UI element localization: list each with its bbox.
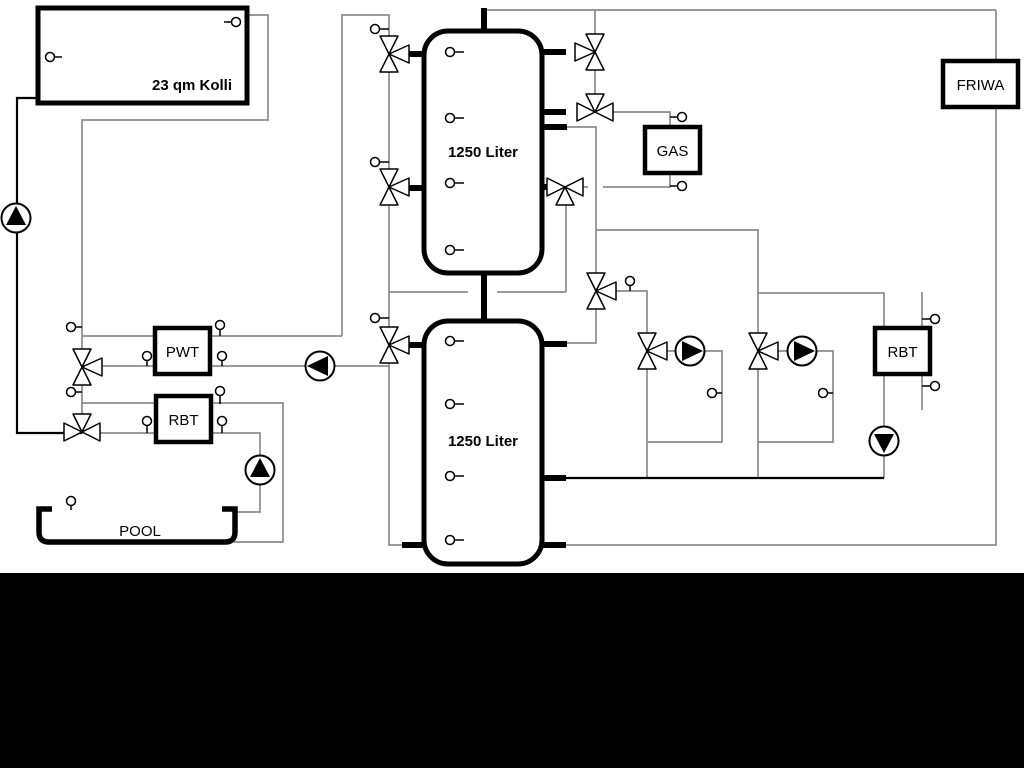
sensor-bulb xyxy=(678,113,687,122)
sensor-bulb xyxy=(819,389,828,398)
pipe xyxy=(342,15,402,545)
temperature-sensor-icon xyxy=(922,382,940,391)
pool-label: POOL xyxy=(119,523,161,540)
temperature-sensor-icon xyxy=(67,497,76,511)
sensor-bulb xyxy=(218,417,227,426)
sensor-bulb xyxy=(67,497,76,506)
buffer-tank-2-label: 1250 Liter xyxy=(448,433,518,450)
temperature-sensor-icon xyxy=(371,314,390,323)
sensor-bulb xyxy=(371,25,380,34)
buffer-tank-1-label: 1250 Liter xyxy=(448,144,518,161)
sensor-bulb xyxy=(678,182,687,191)
sensor-bulb xyxy=(446,337,455,346)
temperature-sensor-icon xyxy=(67,323,83,332)
three-way-valve-distribution-valve xyxy=(587,273,616,309)
sensor-bulb xyxy=(446,536,455,545)
sensor-bulb xyxy=(218,352,227,361)
sensor-bulb xyxy=(216,321,225,330)
temperature-sensor-icon xyxy=(670,113,687,122)
gas-boiler-label: GAS xyxy=(657,143,689,160)
three-way-valve-pool-mixing-valve xyxy=(64,414,100,441)
temperature-sensor-icon xyxy=(670,182,687,191)
three-way-valve-tank1-left-top-valve xyxy=(380,36,409,72)
sensor-bulb xyxy=(67,388,76,397)
solar-collector-label: 23 qm Kolli xyxy=(152,77,232,94)
sensor-bulb xyxy=(626,277,635,286)
sensor-bulb xyxy=(216,387,225,396)
temperature-sensor-icon xyxy=(143,352,152,367)
temperature-sensor-icon xyxy=(371,25,390,34)
pipe xyxy=(758,293,884,478)
sensor-bulb xyxy=(446,472,455,481)
sensor-bulb xyxy=(371,314,380,323)
sensor-bulb xyxy=(143,417,152,426)
three-way-valve-circuit2-mixing-valve xyxy=(749,333,778,369)
pump-icon-rbt-right-pump xyxy=(870,427,899,456)
sensor-bulb xyxy=(446,48,455,57)
three-way-valve-gas-return-valve xyxy=(547,178,583,205)
sensor-bulb xyxy=(446,179,455,188)
temperature-sensor-icon xyxy=(819,389,834,398)
three-way-valve-tank1-left-bottom-valve xyxy=(380,169,409,205)
three-way-valve-tank1-charge-valve xyxy=(575,34,604,70)
footer-black-bar xyxy=(0,573,1024,768)
sensor-bulb xyxy=(46,53,55,62)
three-way-valve-circuit1-mixing-valve xyxy=(638,333,667,369)
three-way-valve-tank2-left-valve xyxy=(380,327,409,363)
temperature-sensor-icon xyxy=(626,277,635,292)
temperature-sensor-icon xyxy=(371,158,390,167)
pipe xyxy=(17,98,82,433)
temperature-sensor-icon xyxy=(216,387,225,405)
temperature-sensor-icon xyxy=(216,321,225,337)
pipe xyxy=(567,127,596,291)
rbt-left-label: RBT xyxy=(169,412,199,429)
friwa-label: FRIWA xyxy=(957,77,1005,94)
sensor-bulb xyxy=(446,246,455,255)
sensor-bulb xyxy=(446,400,455,409)
hydraulic-schematic: 23 qm Kolli 1250 Liter 1250 Liter PWT RB… xyxy=(0,0,1024,768)
sensor-bulb xyxy=(708,389,717,398)
three-way-valve-gas-supply-valve xyxy=(577,94,613,121)
temperature-sensor-icon xyxy=(67,388,83,397)
pump-icon-pwt-pump xyxy=(306,352,335,381)
temperature-sensor-icon xyxy=(708,389,723,398)
pump-icon-pool-pump xyxy=(246,456,275,485)
pipe xyxy=(596,291,647,478)
temperature-sensor-icon xyxy=(218,352,227,367)
sensor-bulb xyxy=(931,315,940,324)
pump-icon-circuit2-pump xyxy=(788,337,817,366)
temperature-sensor-icon xyxy=(218,417,227,434)
sensor-bulb xyxy=(446,114,455,123)
temperature-sensor-icon xyxy=(143,417,152,434)
sensor-bulb xyxy=(67,323,76,332)
pump-icon-circuit1-pump xyxy=(676,337,705,366)
pwt-label: PWT xyxy=(166,344,199,361)
sensor-bulb xyxy=(232,18,241,27)
sensor-bulb xyxy=(931,382,940,391)
temperature-sensor-icon xyxy=(922,315,940,324)
three-way-valve-pwt-mixing-valve xyxy=(73,349,102,385)
pump-icon-solar-pump xyxy=(2,204,31,233)
pipe xyxy=(82,433,260,512)
rbt-right-label: RBT xyxy=(888,344,918,361)
sensor-bulb xyxy=(371,158,380,167)
sensor-bulb xyxy=(143,352,152,361)
